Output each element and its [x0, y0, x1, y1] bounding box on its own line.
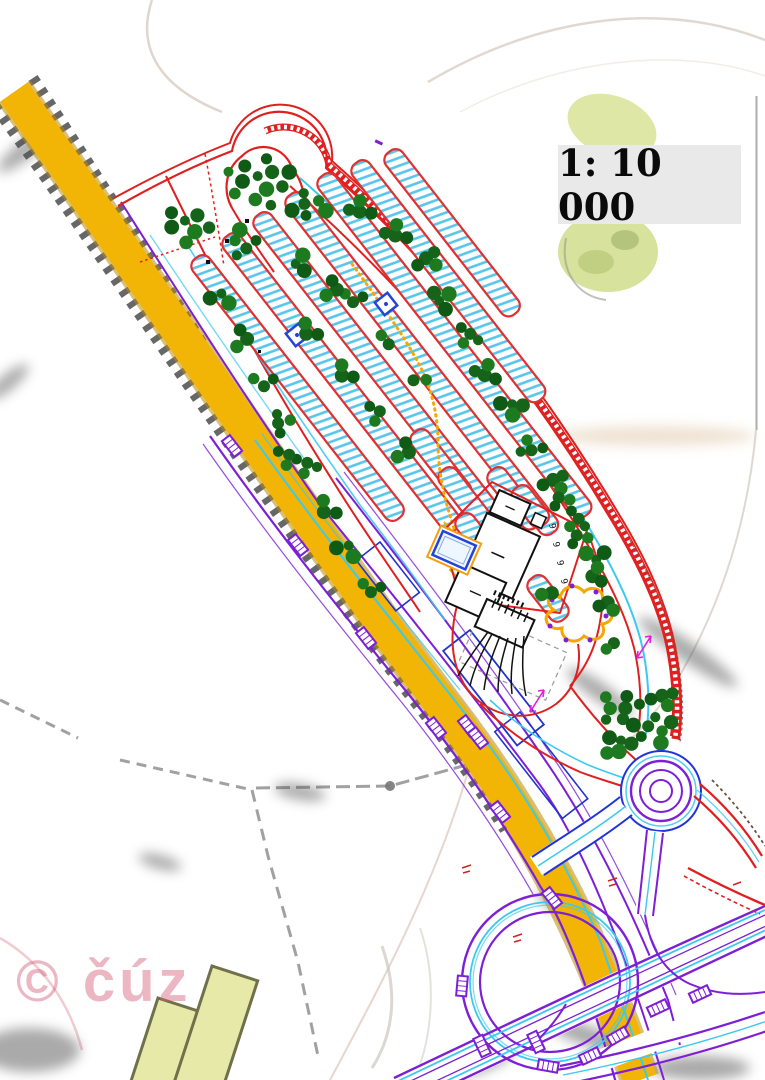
tree-icon [580, 521, 590, 531]
tree-icon [326, 274, 339, 287]
tree-icon [180, 216, 190, 226]
tree-icon [626, 718, 641, 733]
map-canvas: 9 9 9 9 [0, 0, 765, 1080]
tree-icon [391, 450, 404, 463]
tree-icon [164, 220, 179, 235]
tree-icon [390, 218, 403, 231]
tree-icon [179, 236, 193, 250]
culvert-marker [647, 999, 669, 1017]
tree-icon [578, 546, 593, 561]
tree-icon [557, 470, 569, 482]
tree-icon [261, 153, 272, 164]
tree-icon [666, 687, 678, 699]
magenta-double-arrow-icon [530, 636, 651, 712]
tree-icon [229, 188, 241, 200]
scale-label: 1: 10 000 [558, 141, 741, 229]
tree-icon [624, 737, 638, 751]
tree-icon [537, 479, 550, 492]
tree-icon [600, 691, 612, 703]
tree-icon [190, 208, 204, 222]
tree-icon [607, 603, 620, 616]
tree-icon [346, 549, 361, 564]
tree-icon [238, 160, 251, 173]
tree-icon [650, 712, 660, 722]
tree-icon [379, 227, 391, 239]
tree-icon [317, 494, 330, 507]
tree-icon [604, 702, 617, 715]
tree-icon [312, 462, 322, 472]
tree-icon [642, 720, 654, 732]
tree-icon [240, 242, 252, 254]
building-dimension-digits: 9 9 9 9 [546, 523, 569, 590]
tree-icon [276, 180, 288, 192]
tree-icon [438, 302, 453, 317]
tree-icon [582, 532, 593, 543]
tree-icon [266, 200, 277, 211]
tree-icon [456, 322, 467, 333]
tree-icon [320, 289, 333, 302]
tree-icon [358, 291, 369, 302]
tree-icon [282, 164, 297, 179]
tree-icon [265, 165, 279, 179]
tree-icon [481, 358, 494, 371]
tree-icon [602, 730, 617, 745]
tree-icon [311, 328, 324, 341]
tree-icon [165, 206, 178, 219]
tree-icon [376, 330, 387, 341]
tree-icon [232, 250, 242, 260]
tree-icon [330, 507, 343, 520]
tree-icon [516, 398, 530, 412]
tree-icon [347, 371, 360, 384]
tree-icon [601, 643, 612, 654]
basemap-smudge [555, 426, 755, 446]
tree-icon [358, 578, 369, 589]
tree-icon [353, 194, 366, 207]
tree-icon [365, 207, 378, 220]
tree-icon [272, 409, 282, 419]
tree-icon [259, 182, 274, 197]
tree-icon [400, 231, 413, 244]
tree-icon [516, 447, 526, 457]
tree-icon [248, 373, 259, 384]
tree-icon [421, 374, 432, 385]
tree-icon [408, 374, 420, 386]
tree-icon [249, 193, 263, 207]
tree-icon [329, 541, 344, 556]
tree-icon [301, 210, 312, 221]
tree-icon [469, 365, 481, 377]
tree-icon [428, 246, 440, 258]
parking-rows [188, 146, 595, 626]
tree-icon [299, 317, 312, 330]
tree-icon [411, 259, 424, 272]
culvert-marker [689, 985, 711, 1003]
tree-icon [203, 291, 218, 306]
tree-icon [364, 401, 375, 412]
scale-box: 1: 10 000 [558, 145, 741, 224]
tree-icon [224, 167, 234, 177]
tree-icon [535, 588, 548, 601]
tree-icon [661, 699, 674, 712]
tree-icon [295, 248, 310, 263]
tree-icon [521, 434, 532, 445]
tree-icon [634, 699, 645, 710]
tree-icon [591, 561, 604, 574]
tree-icon [258, 380, 270, 392]
tree-icon [550, 501, 561, 512]
tree-icon [230, 340, 243, 353]
tree-icon [285, 203, 300, 218]
tree-icon [297, 263, 312, 278]
tree-icon [251, 235, 262, 246]
tree-icon [489, 373, 502, 386]
tree-icon [601, 714, 611, 724]
tree-icon [273, 446, 284, 457]
tree-icon [283, 449, 295, 461]
tree-icon [232, 222, 248, 238]
tree-icon [525, 444, 537, 456]
tree-icon [645, 693, 658, 706]
tree-icon [566, 506, 577, 517]
tree-icon [221, 295, 236, 310]
tree-icon [458, 337, 469, 348]
tree-icon [376, 582, 387, 593]
tree-icon [441, 286, 456, 301]
tree-icon [620, 690, 633, 703]
culvert-marker [456, 976, 468, 997]
tree-icon [268, 374, 279, 385]
tree-icon [653, 735, 669, 751]
tree-icon [281, 460, 292, 471]
tree-icon [285, 414, 296, 425]
station-mark [375, 139, 384, 145]
tree-icon [597, 545, 612, 560]
tree-icon [318, 203, 334, 219]
tree-icon [593, 600, 606, 613]
tree-icon [595, 575, 608, 588]
tree-icon [429, 258, 442, 271]
tree-icon [203, 221, 215, 233]
tree-icon [335, 358, 348, 371]
tree-icon [567, 538, 578, 549]
tree-icon [298, 468, 309, 479]
tree-icon [600, 746, 614, 760]
tree-icon [493, 396, 508, 411]
tree-icon [399, 436, 412, 449]
tree-icon [235, 174, 250, 189]
tree-icon [299, 188, 309, 198]
tree-icon [298, 198, 310, 210]
tree-icon [234, 324, 247, 337]
tree-icon [427, 286, 441, 300]
tree-icon [301, 457, 313, 469]
tree-icon [275, 428, 286, 439]
tree-icon [564, 494, 575, 505]
tree-icon [343, 204, 355, 216]
watermark: © čúz [16, 948, 192, 1015]
tree-icon [473, 335, 483, 345]
tree-icon [664, 715, 678, 729]
tree-icon [253, 171, 263, 181]
tree-icon [618, 701, 632, 715]
roundabout-icon [621, 751, 701, 831]
culvert-marker [537, 1059, 558, 1072]
tree-icon [369, 415, 380, 426]
tree-icon [537, 443, 548, 454]
